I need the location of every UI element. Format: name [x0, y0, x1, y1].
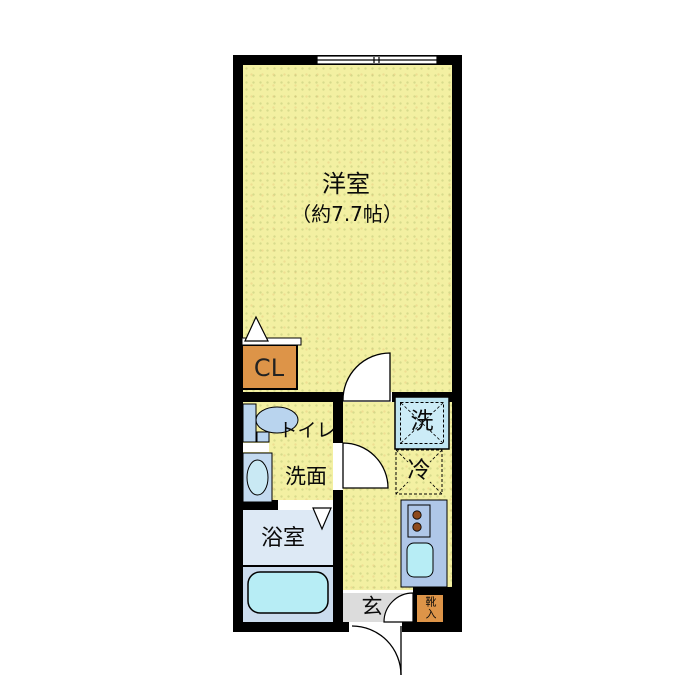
kitchen-unit-icon — [401, 500, 447, 587]
toilet-label: トイレ — [278, 421, 335, 442]
washer-label: 洗 — [411, 409, 434, 434]
entrance-label: 玄 — [362, 595, 383, 618]
bathroom-label: 浴室 — [261, 527, 305, 551]
shoe-storage-label: 靴入 — [424, 596, 436, 620]
bathroom-door-icon — [313, 508, 331, 529]
washbasin-icon — [243, 453, 272, 502]
fridge-label: 冷 — [408, 458, 431, 483]
closet-door-icon — [242, 317, 301, 345]
kitchen-sink-icon — [407, 543, 433, 577]
main-room-label: 洋室 — [322, 171, 370, 197]
washroom-label: 洗面 — [285, 465, 327, 488]
bathtub-icon — [248, 572, 328, 613]
washroom-door-icon — [343, 443, 388, 488]
floorplan-canvas: 洋室 （約7.7帖） CL トイレ 洗面 浴室 洗 冷 玄 靴入 — [0, 0, 700, 700]
entrance-outer-door-icon — [352, 626, 401, 675]
closet-label: CL — [254, 355, 284, 381]
main-room-door-icon — [343, 353, 390, 401]
stove-icon — [408, 505, 430, 537]
fixtures-overlay — [0, 0, 700, 700]
sliding-window-icon — [317, 56, 437, 64]
entrance-inner-door-icon — [384, 593, 413, 622]
main-room-size-label: （約7.7帖） — [291, 203, 403, 225]
